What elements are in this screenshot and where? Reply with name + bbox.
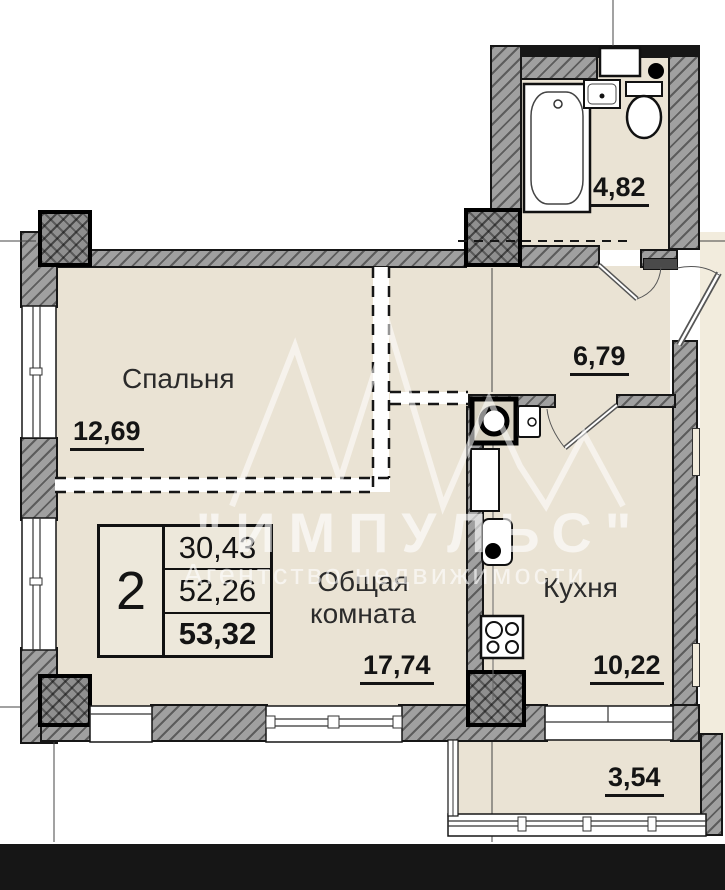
room-living-area: 17,74 [360, 650, 434, 685]
room-bathroom-area: 4,82 [590, 172, 649, 207]
washer-box-icon [600, 48, 640, 76]
watermark-tagline: Агентство недвижимости [105, 559, 665, 592]
water-heater-icon [518, 406, 540, 437]
window [266, 706, 402, 742]
total-area-value: 53,32 [165, 614, 270, 655]
bottom-black-bar [0, 844, 725, 890]
room-bedroom-area: 12,69 [70, 416, 144, 451]
window [90, 706, 152, 742]
room-balcony-area: 3,54 [605, 762, 664, 797]
washbasin-icon [584, 80, 620, 108]
bathtub-icon [524, 84, 590, 212]
floor-plan: Спальня 12,69 Общая комната 17,74 Кухня … [0, 0, 725, 890]
window [22, 518, 56, 650]
watermark-brand: "ИМПУЛЬС" [120, 500, 720, 565]
room-kitchen-area: 10,22 [590, 650, 664, 685]
balcony-glazing [448, 740, 706, 836]
room-hallway-area: 6,79 [570, 341, 629, 376]
pipe-riser-icon [648, 63, 664, 79]
window [545, 706, 673, 740]
bathroom-door [599, 265, 661, 299]
room-bedroom-label: Спальня [122, 363, 235, 395]
window [22, 306, 56, 438]
toilet-icon [626, 82, 662, 138]
entrance-door [677, 267, 719, 345]
stove-icon [481, 616, 523, 658]
